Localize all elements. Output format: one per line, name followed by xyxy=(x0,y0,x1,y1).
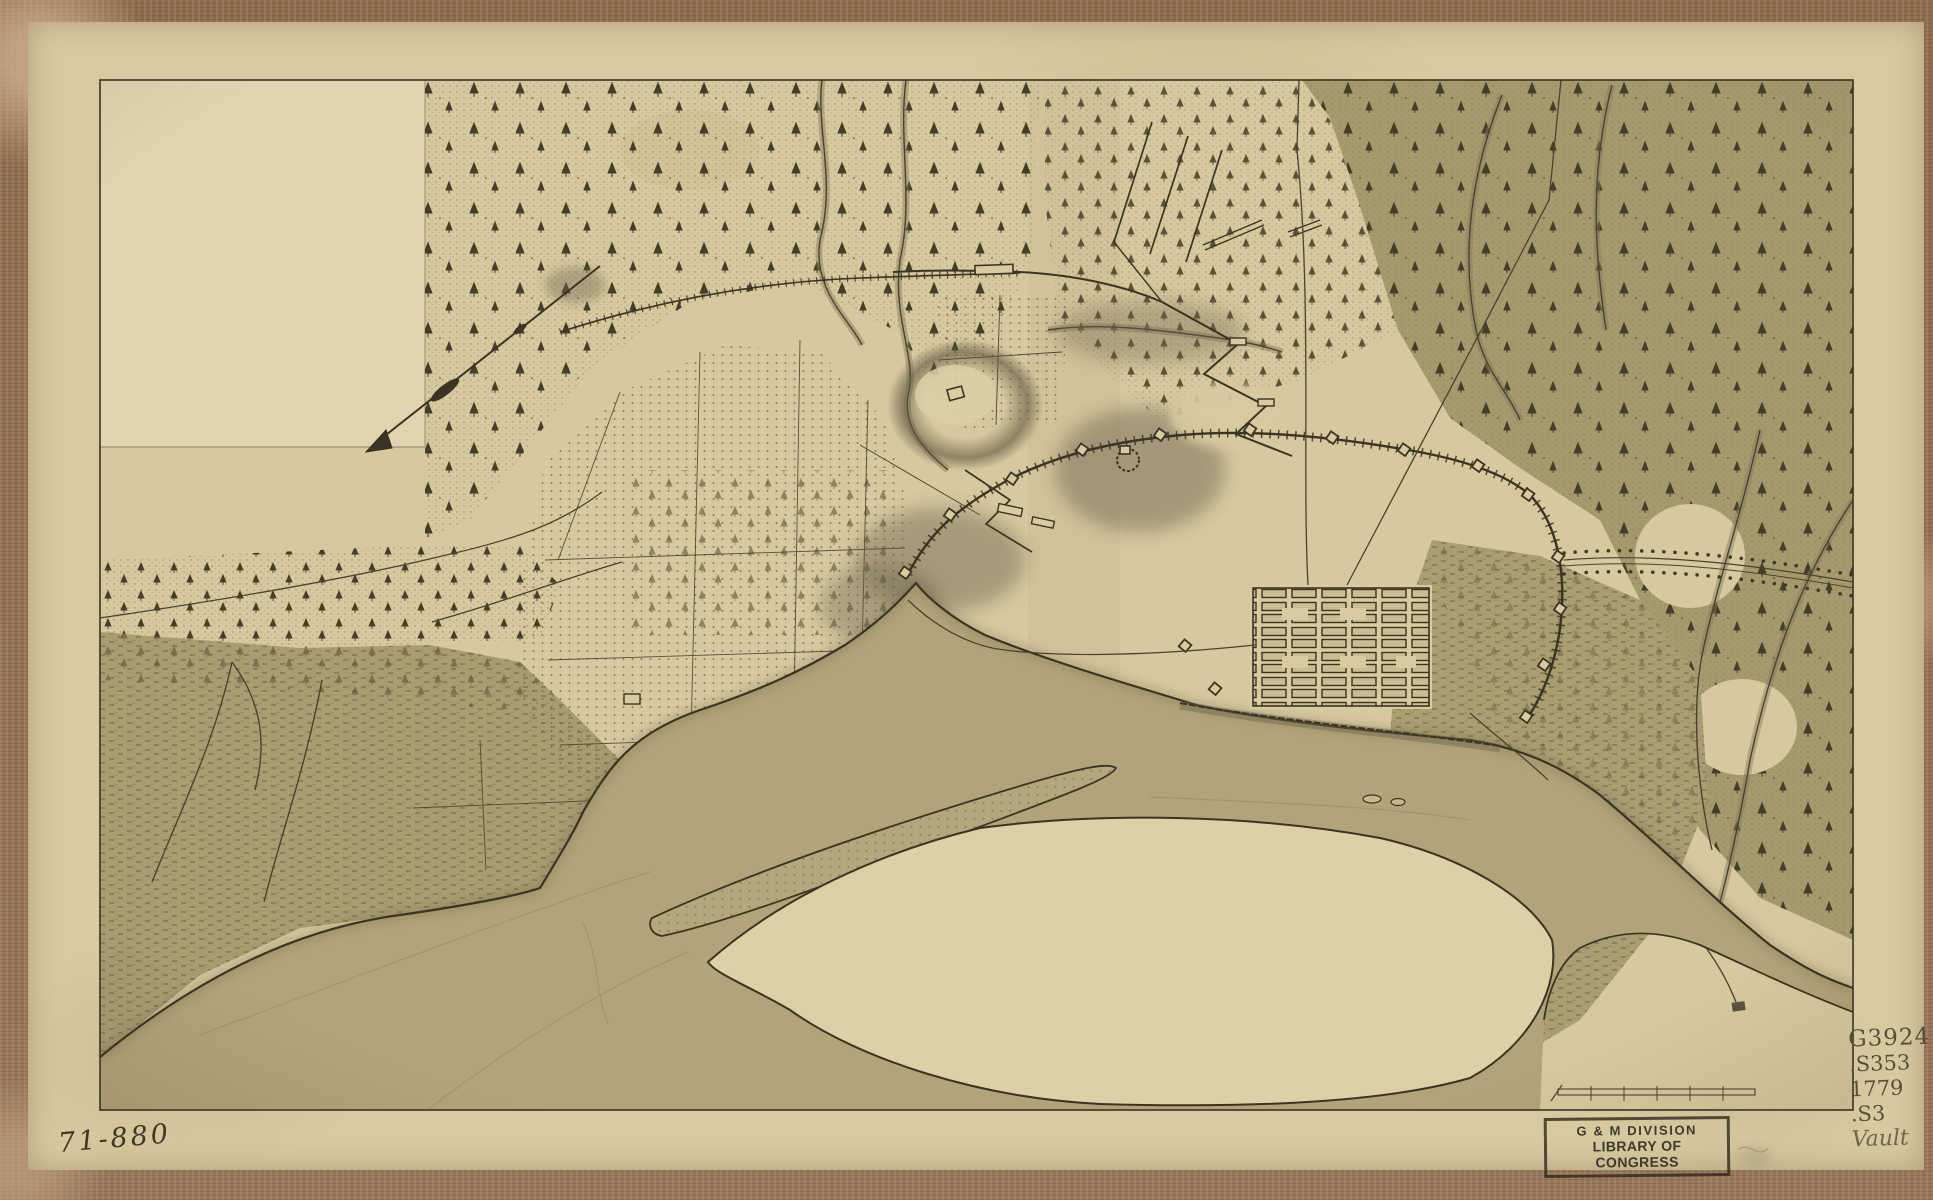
call-number-vault: Vault xyxy=(1851,1125,1933,1153)
call-number-line: .S353 xyxy=(1849,1050,1932,1078)
call-number: G3924 .S353 1779 .S3 Vault xyxy=(1848,1025,1933,1153)
map-drawing xyxy=(0,0,1933,1200)
map-content xyxy=(100,80,1853,1110)
library-stamp: G & M DIVISION LIBRARY OF CONGRESS xyxy=(1544,1116,1731,1178)
call-number-line: .S3 xyxy=(1850,1100,1933,1128)
margin-smudge xyxy=(1738,1147,1771,1169)
stamp-library-line: LIBRARY OF CONGRESS xyxy=(1549,1137,1725,1171)
call-number-line: 1779 xyxy=(1850,1075,1933,1103)
call-number-line: G3924 xyxy=(1848,1025,1931,1053)
map-scan: 71-880 G3924 .S353 1779 .S3 Vault G & M … xyxy=(0,0,1933,1200)
